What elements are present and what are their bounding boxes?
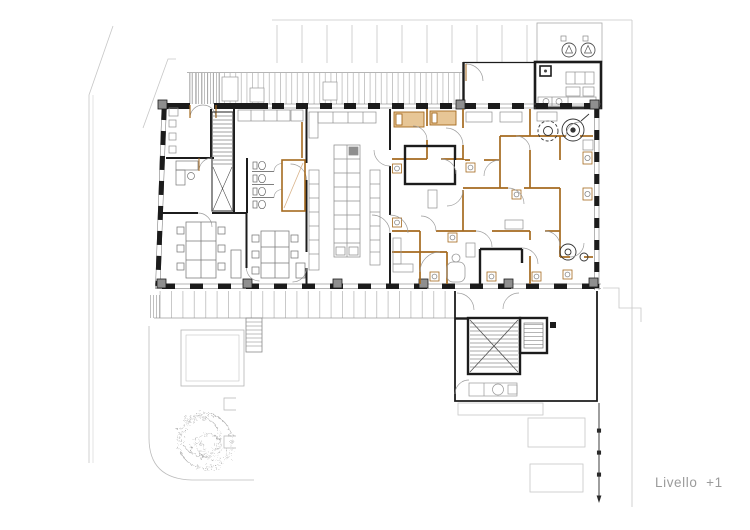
perimeter-walls bbox=[155, 100, 601, 290]
garden bbox=[149, 322, 254, 480]
deck-top bbox=[187, 73, 462, 105]
meeting-table bbox=[177, 222, 241, 278]
annex-stair bbox=[470, 320, 518, 372]
shaft-grid bbox=[524, 323, 543, 348]
internal-stair bbox=[212, 112, 233, 211]
left-wing bbox=[159, 108, 307, 284]
kitchenette bbox=[238, 110, 303, 158]
treatment-chair bbox=[447, 254, 465, 282]
lab-bench bbox=[334, 145, 360, 257]
roof-terrace bbox=[537, 23, 602, 62]
annex-counter bbox=[469, 383, 517, 396]
plant-equipment bbox=[538, 72, 596, 106]
meeting-table bbox=[252, 231, 305, 278]
stair-annex bbox=[455, 291, 597, 401]
floor-plan-canvas: Livello +1 bbox=[0, 0, 750, 530]
sinks bbox=[393, 152, 593, 281]
deck-bottom bbox=[150, 291, 455, 352]
floor-plan-drawing: Livello +1 bbox=[0, 0, 750, 530]
parking-stalls bbox=[277, 25, 527, 63]
ventilation-unit-icon bbox=[562, 43, 576, 57]
right-wing bbox=[390, 109, 593, 284]
toilets bbox=[252, 161, 282, 208]
level-label: Livello +1 bbox=[655, 475, 723, 490]
planter-outline bbox=[181, 330, 244, 386]
plant-room bbox=[463, 62, 601, 108]
entry-stair-hatch bbox=[189, 73, 220, 104]
central-lab bbox=[309, 109, 390, 284]
patient-bed bbox=[394, 111, 456, 127]
shaft-room bbox=[282, 160, 305, 211]
lab-cabinets bbox=[309, 112, 380, 270]
waiting-room-chairs bbox=[169, 108, 178, 153]
reception-desk bbox=[176, 161, 198, 185]
ventilation-unit-icon bbox=[581, 43, 595, 57]
site-fence bbox=[597, 403, 602, 503]
sofa bbox=[393, 238, 413, 272]
